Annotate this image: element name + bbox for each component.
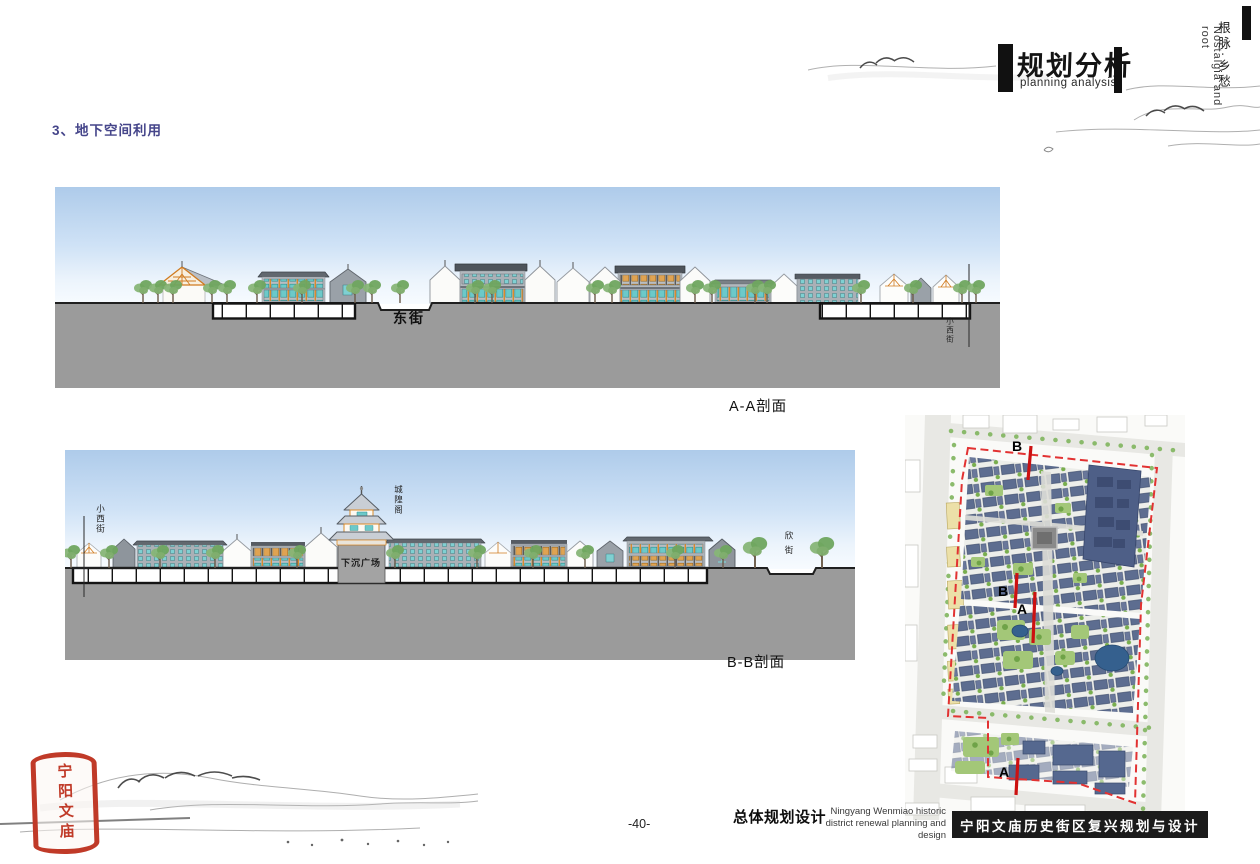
bb-right-street-label: 欣街 <box>783 531 795 560</box>
section-aa-drawing <box>55 187 1000 388</box>
header-black-bar <box>1114 47 1122 93</box>
page-number: -40- <box>628 817 650 831</box>
map-marker-a-bottom: A <box>999 764 1009 780</box>
site-plan-map <box>905 415 1185 820</box>
side-slogan-chinese: 根脉·乡愁 <box>1214 21 1233 111</box>
bb-tower-label: 城隍阁 <box>394 485 403 515</box>
map-marker-b-top: B <box>1012 438 1022 454</box>
footer-banner: 宁阳文庙历史街区复兴规划与设计 <box>952 811 1208 838</box>
aa-street-label: 东街 <box>393 308 425 328</box>
footer-subtitle-en: Ningyang Wenmiao historic district renew… <box>800 806 946 842</box>
seal-text: 宁阳文庙 <box>53 763 77 844</box>
section-bb-drawing <box>65 450 855 660</box>
bb-left-street-label: 小西街 <box>96 504 105 534</box>
red-seal: 宁阳文庙 <box>30 751 100 855</box>
page: 规划分析 planning analysis Nostalgia and roo… <box>0 0 1260 864</box>
map-blue-complex <box>1083 465 1141 567</box>
aa-right-street-label: 小西街 <box>946 317 954 344</box>
bb-caption: B-B剖面 <box>727 651 785 672</box>
footer-subtitle-en-line2: district renewal planning and design <box>800 818 946 842</box>
page-title-en: planning analysis <box>1020 77 1117 89</box>
corner-mark <box>1242 6 1251 40</box>
aa-caption: A-A剖面 <box>729 395 787 416</box>
map-marker-a-mid: A <box>1017 601 1027 617</box>
section-heading: 3、地下空间利用 <box>52 119 162 139</box>
header-black-block <box>998 44 1013 92</box>
bb-plaza-label: 下沉广场 <box>341 556 381 569</box>
bb-underground-level <box>73 568 707 583</box>
map-marker-b-mid: B <box>998 583 1008 599</box>
footer-subtitle-en-line1: Ningyang Wenmiao historic <box>800 806 946 818</box>
